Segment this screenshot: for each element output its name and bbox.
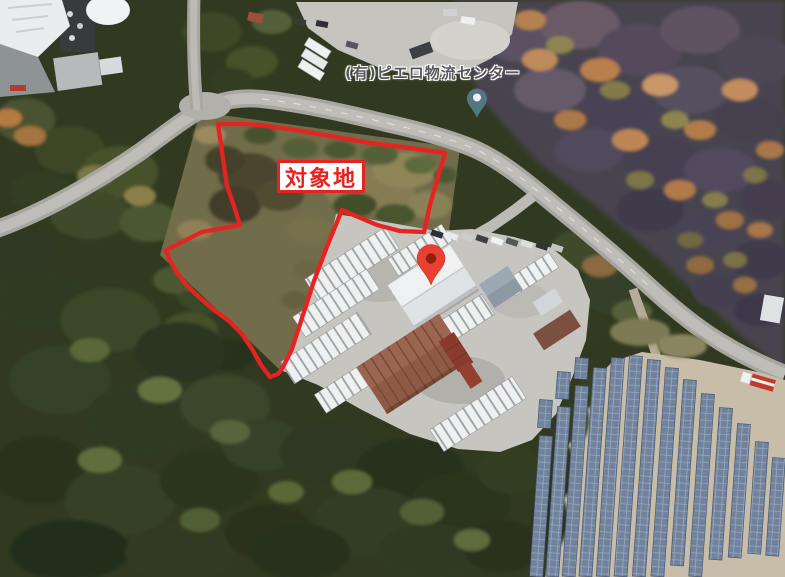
side-road [194, 0, 197, 110]
satellite-imagery[interactable] [0, 0, 785, 577]
site-label: 対象地 [277, 160, 365, 193]
business-name-label[interactable]: (有)ピエロ物流センター [345, 62, 521, 83]
map-canvas[interactable]: (有)ピエロ物流センター 対象地 [0, 0, 785, 577]
